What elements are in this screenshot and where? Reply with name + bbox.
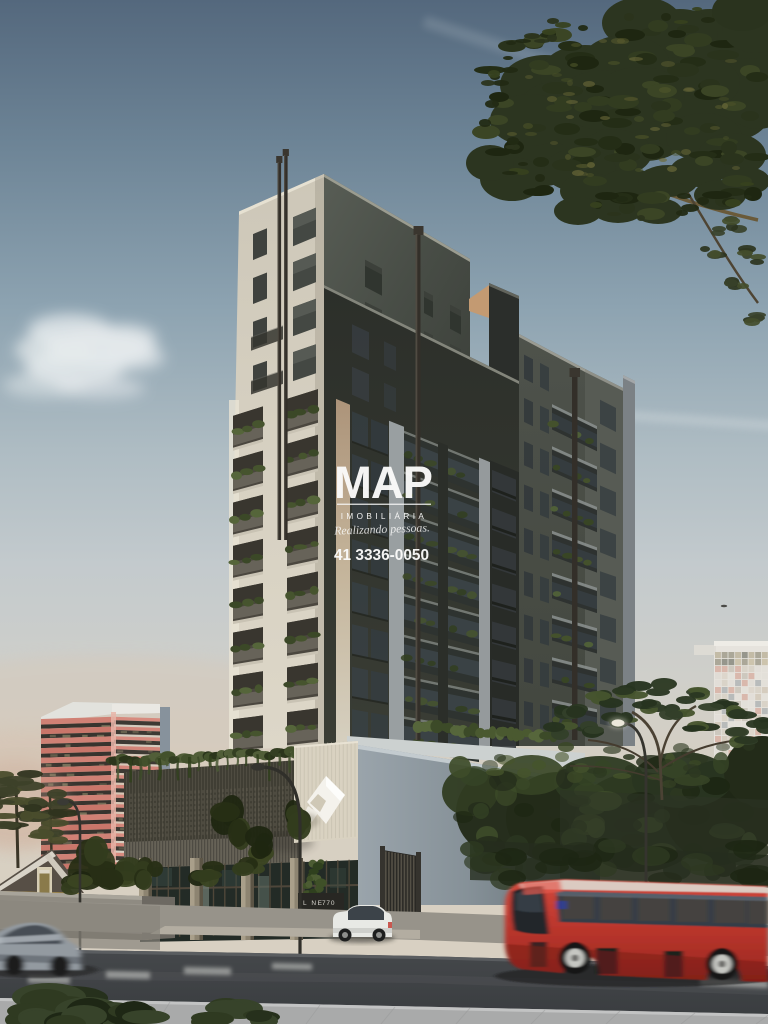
svg-text:IMOBILIÁRIA: IMOBILIÁRIA xyxy=(341,511,428,521)
svg-text:770: 770 xyxy=(322,900,335,907)
svg-text:L NE: L NE xyxy=(303,900,324,907)
svg-text:41 3336-0050: 41 3336-0050 xyxy=(334,547,429,564)
svg-text:MAP: MAP xyxy=(334,457,432,508)
